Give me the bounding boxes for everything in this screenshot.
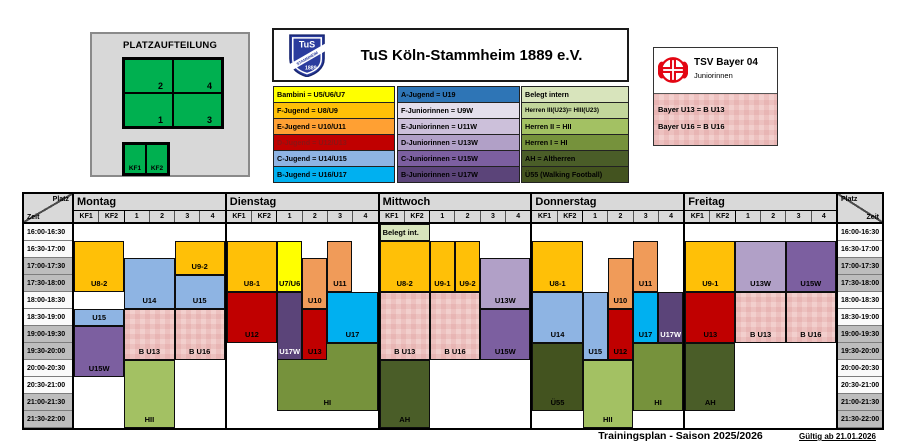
day-subheader: KF1KF21234 [74,211,225,224]
schedule-block: B U13 [380,292,430,360]
schedule-block: AH [685,343,735,411]
corner-zeit-label: Zeit [27,214,39,221]
pitch-column-header: 2 [608,211,633,222]
pitch-column-header: 3 [634,211,659,222]
time-cell: 18:30-19:00 [24,309,72,326]
pitch-layout-title: PLATZAUFTEILUNG [92,40,248,51]
legend-juniorinnen: A-Jugend = U19F-Juniorinnen = U9WE-Junio… [397,86,520,183]
schedule-block: U17W [277,292,302,360]
big-field-quadrant: 2 [124,59,173,93]
plan-title: Trainingsplan - Saison 2025/2026 [563,430,798,442]
time-cell: 16:30-17:00 [838,241,882,258]
pitch-column-header: 3 [328,211,353,222]
schedule-block: U8-1 [227,241,277,292]
time-cell: 19:30-20:00 [24,343,72,360]
bayer-teams-list: Bayer U13 = B U13Bayer U16 = B U16 [654,93,777,145]
time-cell: 21:00-21:30 [838,394,882,411]
pitch-column-header: 3 [481,211,506,222]
time-cell: 21:30-22:00 [838,411,882,428]
legend-row: C-Juniorinnen = U15W [398,150,519,166]
pitch-column-header: KF2 [252,211,277,222]
pitch-column-header: 1 [125,211,150,222]
pitch-column-header: KF1 [380,211,405,222]
legend-row: Bambini = U5/U6/U7 [274,87,394,102]
big-field-diagram: 2413 [122,57,224,129]
bayer-team-row: Bayer U16 = B U16 [654,118,777,135]
day-column-montag: MontagKF1KF21234U8-2U15U15WU14B U13HIIU9… [72,194,225,428]
schedule-block: HI [633,343,683,411]
legend-row: F-Jugend = U8/U9 [274,102,394,118]
pitch-column-header: 2 [455,211,480,222]
bayer-subtitle: Juniorinnen [694,71,733,80]
schedule-block: U15 [74,309,124,326]
time-cell: 17:30-18:00 [838,275,882,292]
pitch-column-header: 1 [583,211,608,222]
legend-row: A-Jugend = U19 [398,87,519,102]
pitch-column-header: KF2 [405,211,430,222]
day-subheader: KF1KF21234 [685,211,836,224]
pitch-column-header: 4 [200,211,224,222]
day-column-freitag: FreitagKF1KF21234U9-1U13AHU13WB U13U15WB… [683,194,836,428]
time-cell: 16:00-16:30 [838,224,882,241]
time-cell: 21:30-22:00 [24,411,72,428]
small-field-cell: KF2 [146,144,168,174]
pitch-column-header: KF1 [532,211,557,222]
time-column-right: Platz Zeit 16:00-16:3016:30-17:0017:00-1… [836,194,882,428]
pitch-column-header: 4 [659,211,683,222]
day-body: U8-2U15U15WU14B U13HIIU9-2U15B U16 [74,224,225,428]
day-name: Freitag [685,194,836,211]
time-cell: 17:30-18:00 [24,275,72,292]
day-subheader: KF1KF21234 [227,211,378,224]
time-column-left: Platz Zeit 16:00-16:3016:30-17:0017:00-1… [24,194,72,428]
pitch-column-header: 4 [353,211,377,222]
legend-jugend: Bambini = U5/U6/U7F-Jugend = U8/U9E-Juge… [273,86,395,183]
day-name: Mittwoch [380,194,531,211]
pitch-column-header: 3 [786,211,811,222]
day-body: U8-1U14Ü55U15HIIU10U12U11U17U17WHI [532,224,683,428]
legend-row: Belegt intern [522,87,628,102]
schedule-block: HII [583,360,633,428]
time-cell: 20:00-20:30 [24,360,72,377]
schedule-block: U14 [532,292,582,343]
schedule-block: U14 [124,258,174,309]
svg-text:1889: 1889 [305,66,317,72]
schedule-block: B U13 [124,309,174,360]
day-body: Belegt int.U8-2B U13AHU9-1U9-2B U16U13WU… [380,224,531,428]
pitch-column-header: 4 [812,211,836,222]
big-field-quadrant: 3 [173,93,222,127]
pitch-column-header: 2 [150,211,175,222]
schedule-block: U13W [735,241,785,292]
schedule-block: U17W [658,292,683,343]
pitch-column-header: 1 [277,211,302,222]
schedule-block: U9-1 [685,241,735,292]
day-subheader: KF1KF21234 [380,211,531,224]
day-name: Montag [74,194,225,211]
corner-zeit-label: Zeit [867,214,879,221]
schedule-block: U13 [302,309,327,360]
time-cell: 16:00-16:30 [24,224,72,241]
schedule-block: B U16 [786,292,836,343]
day-column-dienstag: DienstagKF1KF21234U8-1U12U7/U6HIU17WU10U… [225,194,378,428]
schedule-block: U15W [74,326,124,377]
pitch-column-header: 2 [303,211,328,222]
pitch-column-header: KF2 [99,211,124,222]
legend-row: C-Jugend = U14/U15 [274,150,394,166]
pitch-column-header: 1 [736,211,761,222]
day-body: U9-1U13AHU13WB U13U15WB U16 [685,224,836,428]
time-cell: 21:00-21:30 [24,394,72,411]
corner-cell-left: Platz Zeit [24,194,72,224]
big-field-quadrant: 4 [173,59,222,93]
club-name: TuS Köln-Stammheim 1889 e.V. [326,47,627,64]
legend-row: Herren II = HII [522,118,628,134]
corner-platz-label: Platz [53,196,69,203]
pitch-column-header: 3 [175,211,200,222]
schedule-block: U15W [786,241,836,292]
big-field-quadrant: 1 [124,93,173,127]
time-cell: 19:00-19:30 [24,326,72,343]
legend-row: F-Juniorinnen = U9W [398,102,519,118]
pitch-column-header: KF2 [710,211,735,222]
day-body: U8-1U12U7/U6HIU17WU10U13U11U17 [227,224,378,428]
day-column-mittwoch: MittwochKF1KF21234Belegt int.U8-2B U13AH… [378,194,531,428]
club-header: TuS STAMMHEIM 1889 TuS Köln-Stammheim 18… [272,28,629,82]
schedule-block: HII [124,360,174,428]
schedule-block: U13 [685,292,735,343]
bayer-team-row: Bayer U13 = B U13 [654,101,777,118]
legend-row: Herren I = HI [522,134,628,150]
schedule-block: U9-2 [455,241,480,292]
time-cell: 19:00-19:30 [838,326,882,343]
bayer-logo-icon [658,55,688,85]
schedule-block: U17 [327,292,377,343]
legend-row: D-Jugend = U12/U13 [274,134,394,150]
bayer-header: TSV Bayer 04 Juniorinnen [654,48,777,93]
time-cell: 17:00-17:30 [838,258,882,275]
schedule-block: U9-2 [175,241,225,275]
bayer-panel: TSV Bayer 04 Juniorinnen Bayer U13 = B U… [653,47,778,146]
schedule-block: U12 [227,292,277,343]
schedule-block: B U16 [175,309,225,360]
time-cell: 20:30-21:00 [838,377,882,394]
small-field-cell: KF1 [124,144,146,174]
time-cell: 17:00-17:30 [24,258,72,275]
schedule-block: U11 [327,241,352,292]
schedule-block: U17 [633,292,658,343]
day-name: Dienstag [227,194,378,211]
pitch-column-header: 1 [430,211,455,222]
legend-row: D-Juniorinnen = U13W [398,134,519,150]
time-cell: 18:00-18:30 [838,292,882,309]
schedule-block: Belegt int. [380,224,430,241]
schedule-block: U12 [608,309,633,360]
legend-row: B-Jugend = U16/U17 [274,166,394,182]
time-cell: 18:00-18:30 [24,292,72,309]
pitch-column-header: 2 [761,211,786,222]
schedule-block: U13W [480,258,530,309]
schedule-block: U10 [608,258,633,309]
legend-herren: Belegt internHerren III(U23)= HIII(U23)H… [521,86,629,183]
time-cell: 18:30-19:00 [838,309,882,326]
pitch-column-header: KF1 [685,211,710,222]
schedule-block: U9-1 [430,241,455,292]
pitch-column-header: KF2 [558,211,583,222]
corner-cell-right: Platz Zeit [838,194,882,224]
day-subheader: KF1KF21234 [532,211,683,224]
legend-row: E-Jugend = U10/U11 [274,118,394,134]
schedule-block: Ü55 [532,343,582,411]
schedule-block: U15W [480,309,530,360]
small-field-diagram: KF1KF2 [122,142,170,176]
bayer-title: TSV Bayer 04 [694,57,758,68]
time-cell: 20:00-20:30 [838,360,882,377]
schedule-block: U15 [583,292,608,360]
legend-row: Herren III(U23)= HIII(U23) [522,102,628,118]
legend-row: Ü55 (Walking Football) [522,166,628,182]
schedule-block: U8-2 [74,241,124,292]
legend-row: E-Juniorinnen = U11W [398,118,519,134]
pitch-column-header: KF1 [227,211,252,222]
schedule-block: U7/U6 [277,241,302,292]
training-schedule-table: Platz Zeit 16:00-16:3016:30-17:0017:00-1… [22,192,884,430]
schedule-block: U8-2 [380,241,430,292]
schedule-block: B U16 [430,292,480,360]
schedule-block: U10 [302,258,327,309]
schedule-block: B U13 [735,292,785,343]
schedule-block: U8-1 [532,241,582,292]
pitch-layout-panel: PLATZAUFTEILUNG 2413 KF1KF2 [90,32,250,177]
time-cell: 19:30-20:00 [838,343,882,360]
schedule-block: U11 [633,241,658,292]
legend-row: B-Juniorinnen = U17W [398,166,519,182]
legend-row: AH = Altherren [522,150,628,166]
day-name: Donnerstag [532,194,683,211]
schedule-block: U15 [175,275,225,309]
pitch-column-header: KF1 [74,211,99,222]
time-cell: 20:30-21:00 [24,377,72,394]
valid-from-label: Gültig ab 21.01.2026 [799,432,876,441]
svg-text:TuS: TuS [299,39,315,49]
day-column-donnerstag: DonnerstagKF1KF21234U8-1U14Ü55U15HIIU10U… [530,194,683,428]
tus-club-logo-icon: TuS STAMMHEIM 1889 [288,33,326,77]
schedule-block: AH [380,360,430,428]
time-cell: 16:30-17:00 [24,241,72,258]
pitch-column-header: 4 [506,211,530,222]
corner-platz-label: Platz [841,196,857,203]
